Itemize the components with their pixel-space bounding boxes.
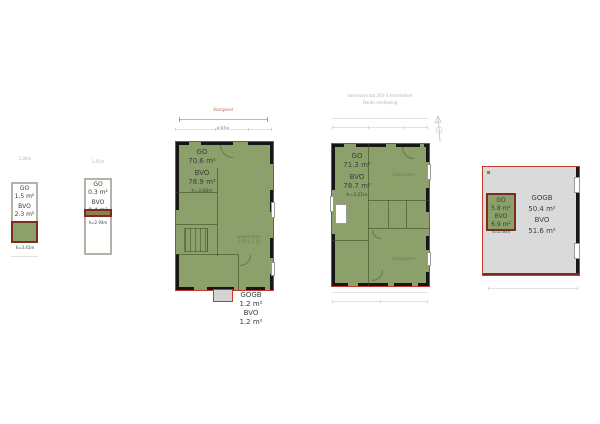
- staircase: [184, 228, 208, 252]
- dim-tick: [267, 117, 268, 122]
- wall-segment: [332, 144, 335, 190]
- wall-segment: [334, 283, 348, 286]
- gogb-value: 50.4 m²: [519, 204, 565, 215]
- third-floor-faint-dimline: [332, 127, 428, 128]
- attic-bvo-value: 2.3 m²: [7, 211, 42, 219]
- wall-segment: [358, 283, 388, 286]
- shaft-dim-note: 1.45m: [81, 159, 115, 164]
- sheet-header-line2: Derde verdieping: [330, 100, 430, 105]
- floor-plan-second-floor: GO 70.6 m² BVO 78.9 m² h=3.08m woonkamer…: [175, 141, 274, 291]
- gogb-value: 1.2 m²: [234, 300, 268, 309]
- go-value: 70.6 m²: [180, 157, 224, 166]
- attic-go-area: [11, 221, 38, 243]
- door-swing: [402, 147, 414, 159]
- bvo-value: 78.9 m²: [180, 178, 224, 187]
- faint-tick: [368, 126, 369, 129]
- room-label: woonkamer 4.97 x 7.10: [228, 234, 270, 244]
- attic-go-value: 1.5 m²: [7, 193, 42, 201]
- height-note: h=3.21m: [336, 193, 378, 199]
- second-floor-width-dim: 4.97m: [205, 115, 241, 134]
- attic-height-note: h=3.41m: [8, 245, 42, 250]
- wall-segment: [394, 283, 412, 286]
- third-floor-measure-block: GO 71.3 m² BVO 78.7 m² h=3.21m: [336, 152, 378, 199]
- dim-tick: [179, 117, 180, 122]
- closet: [335, 204, 347, 224]
- attic-bottom-dimline: [11, 256, 38, 257]
- interior-wall: [388, 200, 389, 228]
- chimney: [574, 177, 580, 193]
- room-label: slaapkamer: [384, 172, 424, 177]
- interior-wall: [238, 254, 239, 290]
- floorplan-sheet: 1.06m GO 1.5 m² BVO 2.3 m² h=3.41m 1.45m…: [0, 0, 600, 424]
- interior-wall: [176, 224, 217, 225]
- wall-segment: [179, 287, 194, 290]
- gogb-label: GOGB: [234, 291, 268, 300]
- faint-tick: [380, 300, 381, 303]
- interior-wall: [332, 240, 368, 241]
- height-note: h=3.08m: [180, 189, 224, 195]
- interior-wall: [368, 200, 429, 201]
- faint-tick: [271, 128, 272, 131]
- bvo-label: BVO: [519, 215, 565, 226]
- shaft-bvo-label: BVO: [80, 199, 116, 207]
- attic-bvo-label: BVO: [7, 203, 42, 211]
- bvo-value: 51.6 m²: [519, 226, 565, 237]
- attic-go-label: GO: [7, 185, 42, 193]
- wall-segment: [246, 287, 265, 290]
- interior-wall: [406, 200, 407, 228]
- faint-tick: [427, 126, 428, 129]
- window: [330, 196, 334, 212]
- balcony-area: [213, 289, 233, 302]
- faint-tick: [488, 287, 489, 290]
- bvo-label: BVO: [488, 213, 514, 221]
- bvo-value: 6.9 m²: [488, 221, 514, 229]
- wall-segment: [270, 274, 273, 290]
- go-label: GO: [488, 197, 514, 205]
- faint-tick: [577, 287, 578, 290]
- shaft-go-value: 0.3 m²: [80, 189, 116, 197]
- bvo-label: BVO: [234, 309, 268, 318]
- balcony-measure-block: GOGB 1.2 m² BVO 1.2 m²: [234, 291, 268, 327]
- window: [427, 164, 431, 180]
- floor-plan-roof-terrace: GO 5.8 m² BVO 6.9 m² h=2.04m GOGB 50.4 m…: [482, 166, 580, 276]
- shaft-height-note: h=2.94m: [81, 220, 115, 225]
- attic-dim-note: 1.06m: [8, 156, 42, 161]
- wall-segment: [426, 236, 429, 250]
- roof-stairhouse: GO 5.8 m² BVO 6.9 m² h=2.04m: [486, 193, 516, 231]
- sheet-header-line1: Valeriusstraat 203-3 Amsterdam: [330, 93, 430, 98]
- go-value: 71.3 m²: [336, 161, 378, 170]
- faint-tick: [175, 128, 176, 131]
- interior-wall: [368, 228, 429, 229]
- go-label: GO: [336, 152, 378, 161]
- go-label: GO: [180, 148, 224, 157]
- door-swing: [240, 255, 251, 266]
- bvo-label: BVO: [180, 169, 224, 178]
- window: [427, 252, 431, 266]
- chimney: [574, 243, 580, 259]
- wall-segment: [270, 142, 273, 164]
- faint-tick: [215, 128, 216, 131]
- faint-tick: [332, 300, 333, 303]
- wall-segment: [356, 144, 386, 147]
- interior-wall: [176, 254, 238, 255]
- stairhouse-measure-block: GO 5.8 m² BVO 6.9 m² h=2.04m: [488, 197, 514, 234]
- faint-tick: [427, 300, 428, 303]
- second-floor-faint-dimline: [175, 129, 272, 130]
- height-note: h=2.04m: [488, 229, 514, 234]
- wall-segment: [176, 142, 179, 210]
- shaft-go-label: GO: [80, 181, 116, 189]
- faint-tick: [404, 126, 405, 129]
- third-floor-faint-dimline: [332, 118, 428, 119]
- wall-segment: [426, 272, 429, 286]
- go-value: 5.8 m²: [488, 205, 514, 213]
- wall-segment: [426, 144, 429, 162]
- corner-mark: [487, 171, 490, 174]
- faint-tick: [248, 128, 249, 131]
- bvo-value: 1.2 m²: [234, 318, 268, 327]
- parapet: [483, 273, 579, 276]
- second-floor-facade-label: Voorgevel: [190, 107, 256, 112]
- north-arrow-icon: [431, 110, 447, 144]
- window: [271, 202, 275, 218]
- bvo-value: 78.7 m²: [336, 182, 378, 191]
- room-label: slaapkamer: [384, 256, 424, 261]
- faint-tick: [332, 126, 333, 129]
- second-floor-measure-block: GO 70.6 m² BVO 78.9 m² h=3.08m: [180, 148, 224, 195]
- attic-measure-block: GO 1.5 m² BVO 2.3 m²: [7, 185, 42, 219]
- third-floor-bottom-dimline: [332, 292, 428, 293]
- shaft-go-area: [84, 209, 112, 217]
- bvo-label: BVO: [336, 173, 378, 182]
- roof-bottom-dimline: [488, 288, 578, 289]
- gogb-label: GOGB: [519, 193, 565, 204]
- window: [271, 262, 275, 276]
- wall-segment: [332, 234, 335, 286]
- door-swing: [372, 270, 383, 281]
- roof-terrace-measure-block: GOGB 50.4 m² BVO 51.6 m²: [519, 193, 565, 237]
- wall-segment: [176, 254, 179, 290]
- door-swing: [372, 230, 381, 239]
- wall-segment: [270, 238, 273, 258]
- floor-plan-third-floor: GO 71.3 m² BVO 78.7 m² h=3.21m slaapkame…: [331, 143, 430, 287]
